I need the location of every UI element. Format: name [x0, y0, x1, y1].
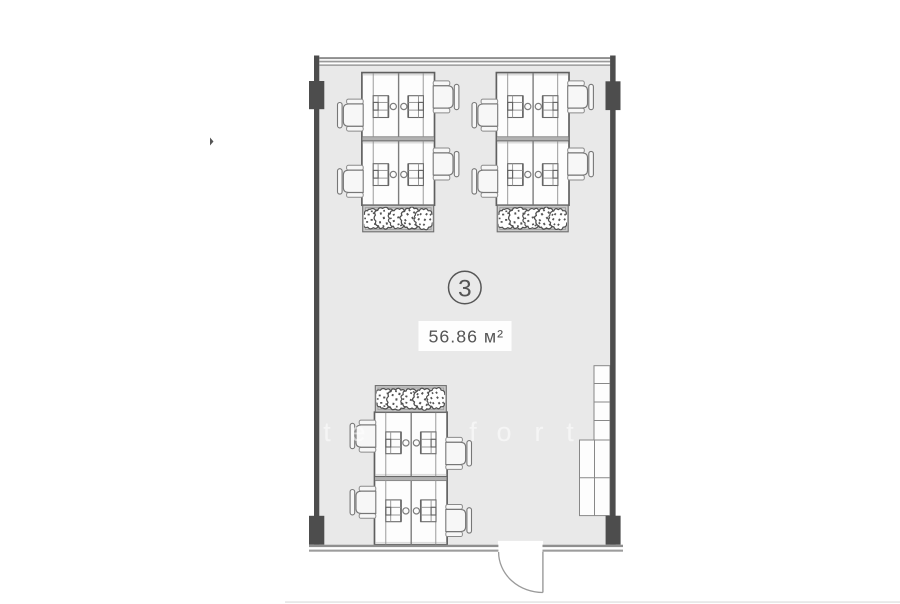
- svg-text:r: r: [535, 417, 544, 447]
- svg-text:56.86 м²: 56.86 м²: [429, 327, 505, 347]
- svg-text:3: 3: [458, 276, 472, 303]
- svg-text:t: t: [323, 417, 331, 447]
- svg-text:e: e: [350, 417, 365, 447]
- svg-text:t: t: [566, 417, 574, 447]
- svg-text:o: o: [496, 417, 511, 447]
- svg-text:f: f: [469, 417, 477, 447]
